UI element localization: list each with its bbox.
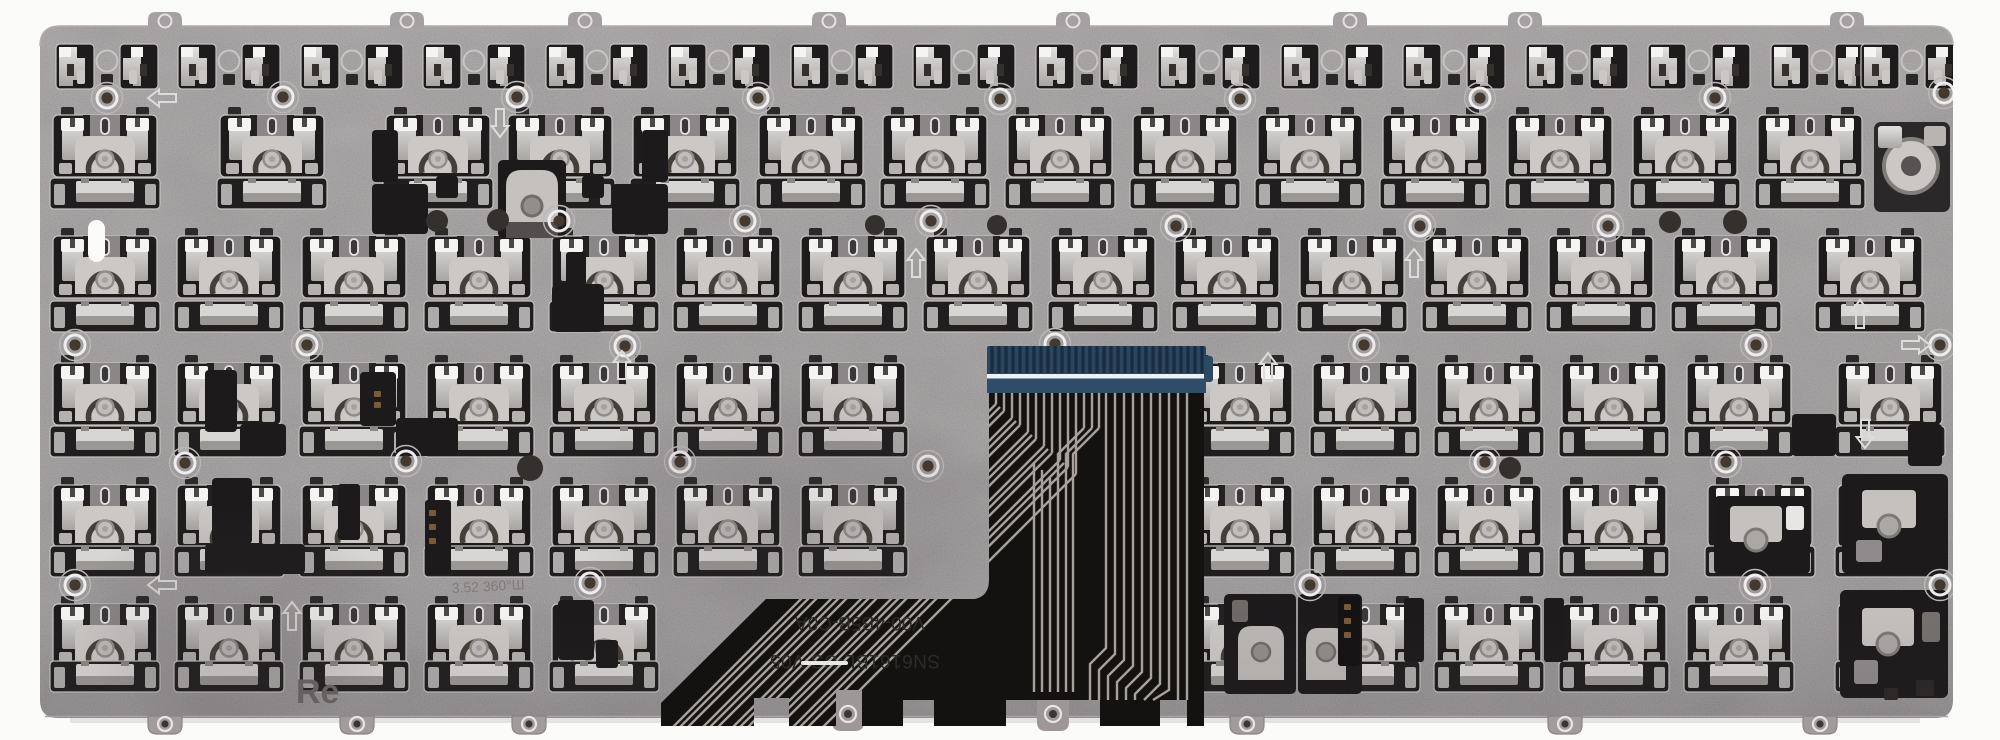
- svg-text:SN6161BL-US V05: SN6161BL-US V05: [770, 650, 940, 671]
- svg-text:V00-4B5B-C0A: V00-4B5B-C0A: [795, 612, 925, 633]
